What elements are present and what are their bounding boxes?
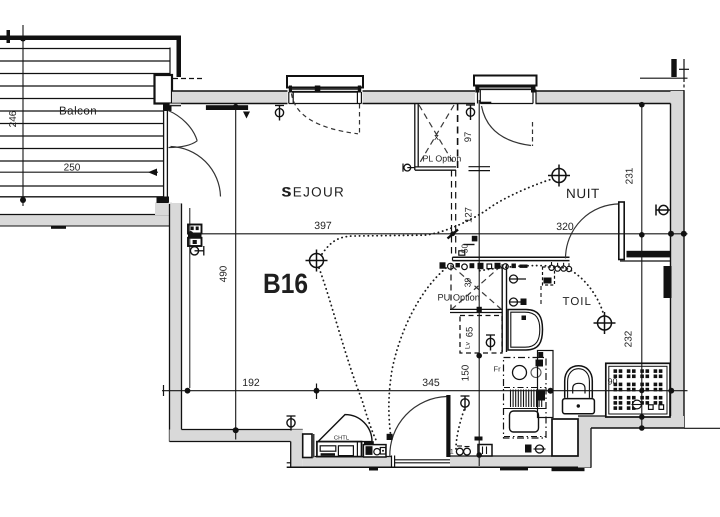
svg-text:S: S <box>282 185 291 200</box>
svg-text:320: 320 <box>556 221 574 233</box>
svg-text:SEJOUR: SEJOUR <box>283 185 346 200</box>
svg-text:CHTL: CHTL <box>334 435 350 442</box>
svg-text:Lv: Lv <box>465 341 472 349</box>
svg-text:246: 246 <box>8 110 19 127</box>
svg-text:490: 490 <box>219 265 230 282</box>
svg-text:Fr: Fr <box>494 365 502 374</box>
svg-text:TOIL: TOIL <box>563 296 592 308</box>
svg-text:B16: B16 <box>263 268 308 299</box>
svg-text:50: 50 <box>460 244 470 254</box>
svg-text:250: 250 <box>64 163 81 174</box>
svg-text:Balcon: Balcon <box>59 106 97 118</box>
svg-text:x: x <box>434 132 439 143</box>
svg-text:39: 39 <box>462 278 472 288</box>
svg-text:NUIT: NUIT <box>566 186 600 201</box>
svg-text:231: 231 <box>625 167 636 184</box>
svg-text:127: 127 <box>464 207 475 223</box>
svg-text:192: 192 <box>242 377 260 389</box>
svg-text:345: 345 <box>422 377 440 389</box>
svg-text:65: 65 <box>465 327 476 338</box>
svg-text:1: 1 <box>450 449 454 456</box>
svg-text:150: 150 <box>461 364 472 381</box>
svg-text:397: 397 <box>314 220 332 232</box>
svg-text:90: 90 <box>608 377 618 387</box>
svg-text:PU Option: PU Option <box>438 293 480 303</box>
svg-text:97: 97 <box>463 132 474 143</box>
svg-text:232: 232 <box>624 330 635 347</box>
svg-text:PL Option: PL Option <box>423 154 462 164</box>
